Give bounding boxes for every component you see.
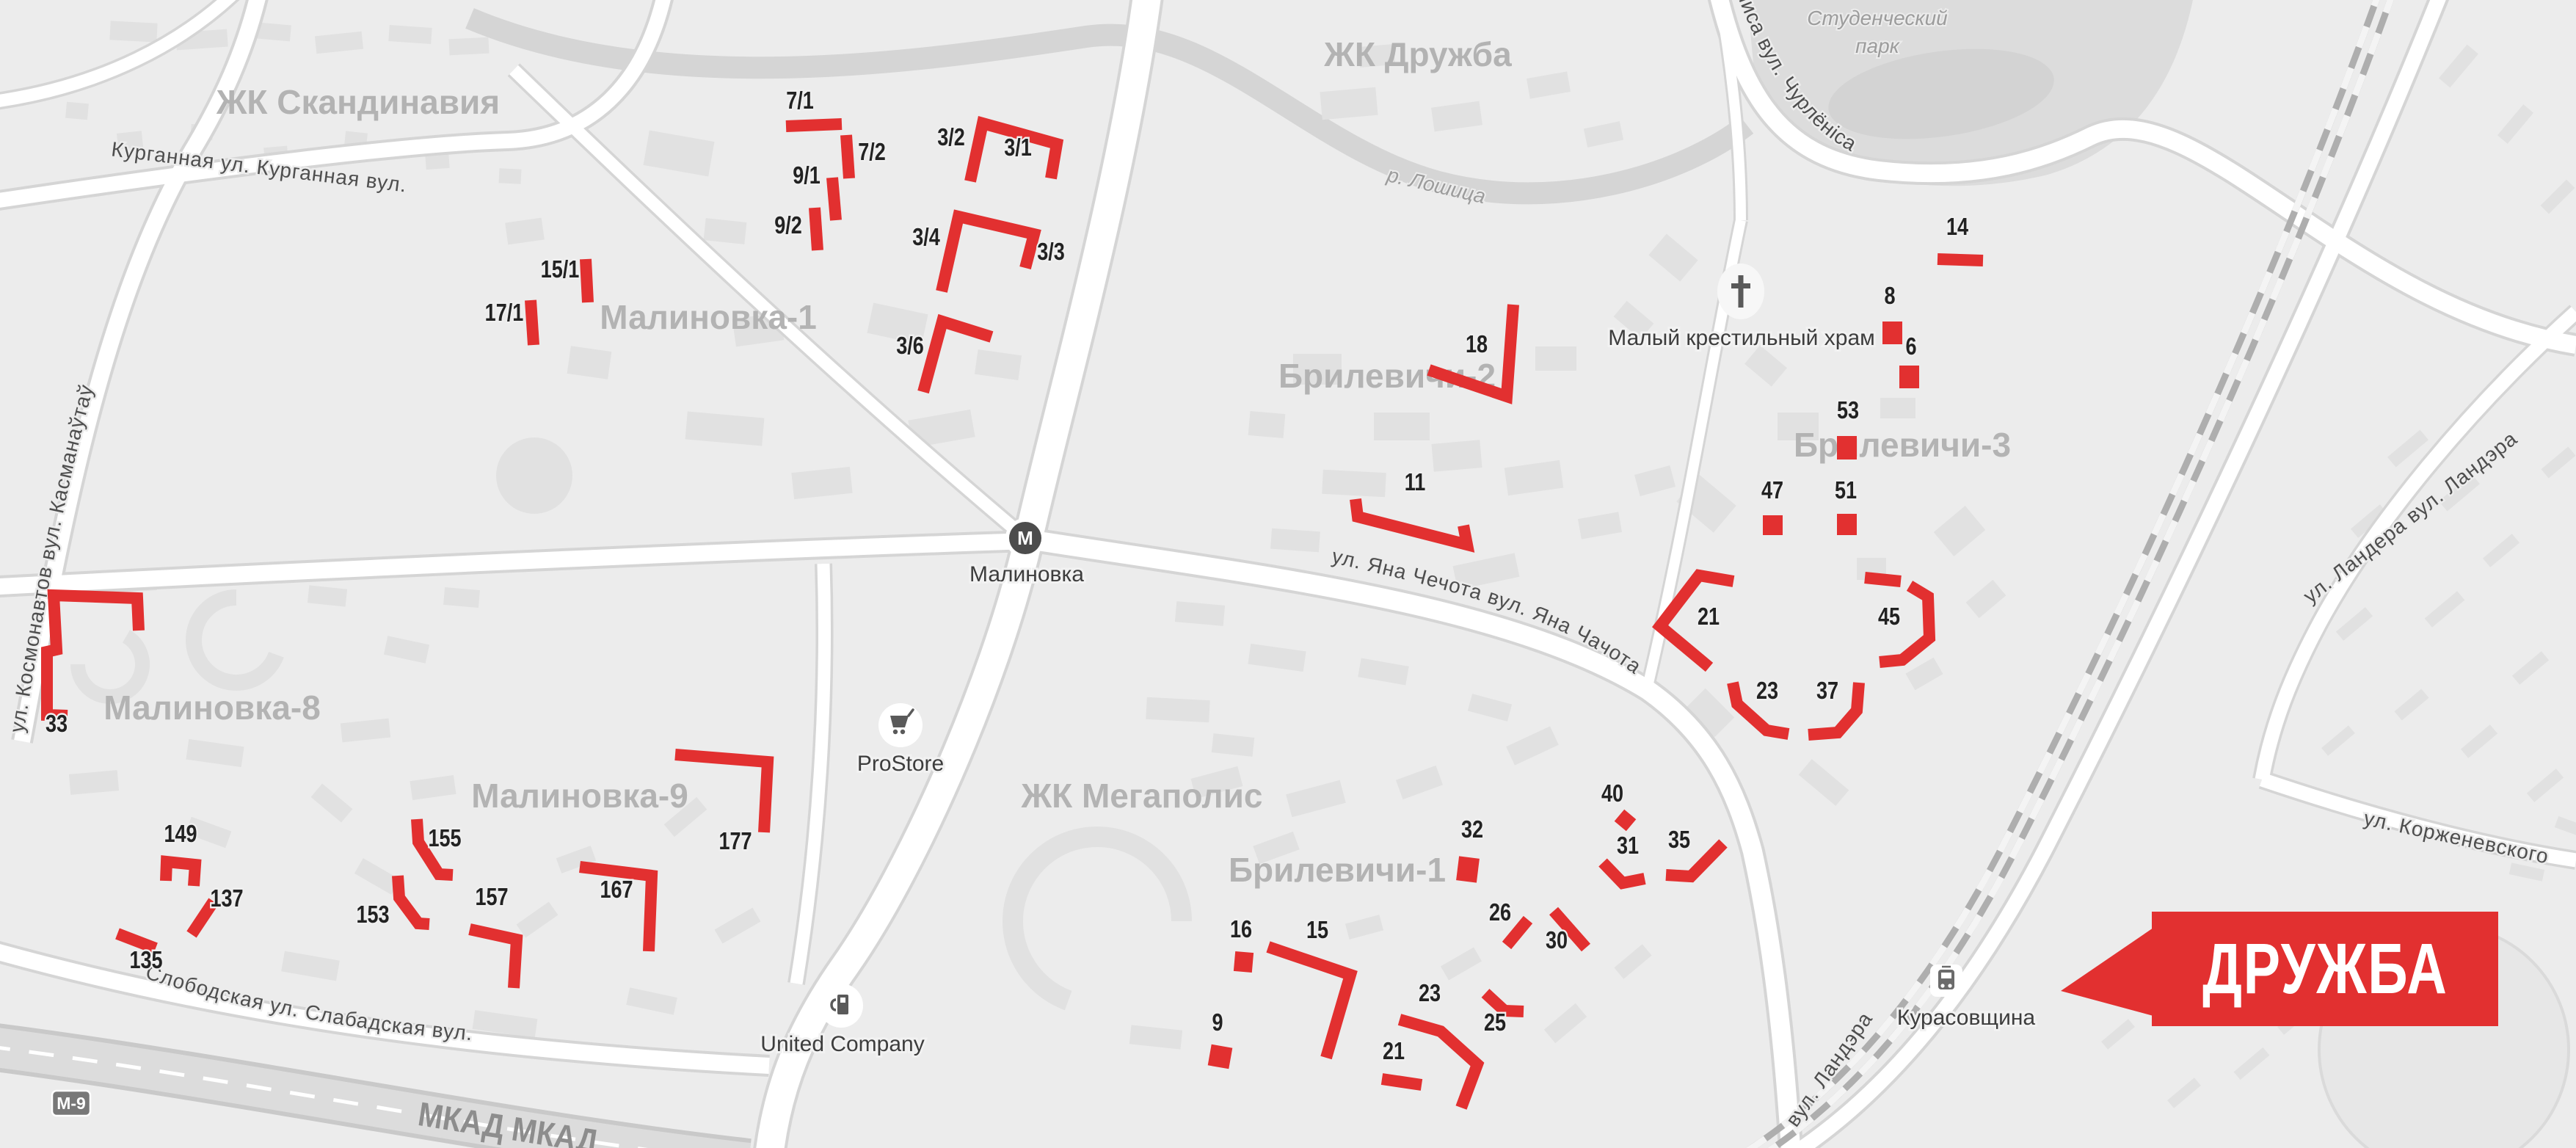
building-number: 53 bbox=[1837, 398, 1859, 424]
area-label: Малиновка-1 bbox=[600, 298, 817, 336]
building-marker: 167 bbox=[580, 867, 652, 951]
building-number: 32 bbox=[1461, 817, 1483, 843]
train-icon bbox=[1930, 964, 1962, 997]
building-marker: 17/1 bbox=[485, 300, 534, 345]
building-marker: 155 bbox=[417, 819, 462, 875]
building-marker: 47 bbox=[1761, 478, 1783, 535]
nature-label: р. Лошица bbox=[1384, 163, 1488, 208]
area-label: Брилевичи-1 bbox=[1229, 851, 1446, 889]
building-marker: 37 bbox=[1808, 678, 1859, 735]
building-marker: 40 bbox=[1601, 781, 1636, 832]
building-marker: 30 bbox=[1546, 911, 1586, 954]
building-number: 7/2 bbox=[858, 139, 886, 166]
building-number: 135 bbox=[129, 948, 162, 974]
building-marker: 6 bbox=[1899, 334, 1919, 388]
building-marker: 31 bbox=[1603, 833, 1645, 883]
building-marker: 3/4 bbox=[912, 217, 1034, 291]
fuel-icon bbox=[819, 984, 863, 1028]
building-number: 21 bbox=[1698, 604, 1720, 631]
nature-label: Студенческий bbox=[1807, 7, 1948, 29]
poi-label: ProStore bbox=[857, 752, 944, 776]
building-number: 149 bbox=[164, 821, 197, 848]
building-number: 21 bbox=[1383, 1039, 1405, 1065]
building-number: 3/4 bbox=[912, 225, 940, 251]
building-marker: 26 bbox=[1489, 900, 1528, 945]
building-number: 23 bbox=[1419, 981, 1441, 1007]
building-number: 9/1 bbox=[793, 163, 821, 189]
building-number: 3/3 bbox=[1037, 239, 1065, 266]
building-number: 25 bbox=[1484, 1010, 1506, 1036]
building-marker: 7/1 bbox=[786, 88, 842, 126]
building-marker: 15 bbox=[1268, 918, 1350, 1058]
building-number: 33 bbox=[46, 711, 68, 738]
building-marker: 15/1 bbox=[541, 257, 588, 302]
poi-label: United Company bbox=[760, 1032, 924, 1056]
building-marker: 135 bbox=[117, 934, 163, 974]
building-number: 137 bbox=[210, 886, 243, 912]
building-number: 6 bbox=[1905, 334, 1916, 360]
building-number: 18 bbox=[1466, 332, 1488, 358]
building-number: 167 bbox=[600, 877, 633, 904]
building-number: 3/1 bbox=[1004, 135, 1032, 161]
building-number: 7/1 bbox=[786, 88, 814, 115]
building-number: 15/1 bbox=[541, 257, 580, 283]
building-number: 153 bbox=[356, 902, 389, 929]
poi-label: Малый крестильный храм bbox=[1608, 326, 1875, 350]
building-marker: 3/1 bbox=[1004, 135, 1032, 161]
building-number: 9 bbox=[1212, 1010, 1223, 1036]
building-marker: 35 bbox=[1666, 827, 1723, 876]
nature-label: парк bbox=[1855, 34, 1901, 57]
building-marker: 3/2 bbox=[937, 123, 1057, 181]
building-marker: 157 bbox=[470, 884, 517, 988]
building-marker: 32 bbox=[1456, 817, 1483, 883]
building-number: 35 bbox=[1668, 827, 1690, 854]
building-number: 157 bbox=[475, 884, 508, 911]
building-marker: 9/2 bbox=[774, 208, 818, 250]
building-number: 30 bbox=[1546, 928, 1568, 954]
building-number: 3/2 bbox=[937, 125, 965, 151]
building-marker: 153 bbox=[356, 876, 429, 929]
building-number: 16 bbox=[1230, 917, 1252, 943]
building-marker: 45 bbox=[1865, 578, 1929, 662]
building-number: 177 bbox=[718, 829, 752, 855]
building-number: 51 bbox=[1835, 478, 1857, 504]
building-marker: 25 bbox=[1484, 993, 1524, 1036]
area-label: Брилевичи-3 bbox=[1794, 426, 2011, 464]
building-marker: 21 bbox=[1382, 1039, 1422, 1085]
building-marker: 149 bbox=[164, 821, 197, 886]
building-number: 9/2 bbox=[774, 213, 802, 239]
building-number: 47 bbox=[1761, 478, 1783, 504]
building-number: 31 bbox=[1617, 833, 1639, 860]
banner-arrow-icon bbox=[2059, 922, 2153, 1019]
building-marker: 7/2 bbox=[846, 135, 886, 178]
road-badge-label: М-9 bbox=[57, 1094, 86, 1113]
building-number: 40 bbox=[1601, 781, 1623, 807]
building-marker: 137 bbox=[192, 886, 244, 934]
road-badge-m9: М-9 bbox=[52, 1091, 90, 1116]
building-marker: 51 bbox=[1835, 478, 1857, 535]
building-marker: 9 bbox=[1208, 1010, 1233, 1069]
building-number: 15 bbox=[1306, 918, 1328, 944]
building-marker: 8 bbox=[1882, 283, 1902, 344]
building-number: 11 bbox=[1405, 470, 1426, 496]
building-number: 17/1 bbox=[485, 300, 524, 327]
svg-text:М: М bbox=[1017, 527, 1033, 549]
building-marker: 16 bbox=[1230, 917, 1254, 973]
building-number: 3/6 bbox=[896, 333, 924, 360]
building-number: 23 bbox=[1756, 678, 1778, 705]
building-number: 8 bbox=[1884, 283, 1895, 310]
cross-icon bbox=[1717, 264, 1764, 319]
area-label: Малиновка-8 bbox=[103, 689, 321, 727]
cart-icon bbox=[878, 703, 923, 747]
building-number: 45 bbox=[1878, 604, 1900, 631]
building-number: 26 bbox=[1489, 900, 1511, 926]
building-marker: 3/3 bbox=[1037, 239, 1065, 266]
street-label: ул. Корженевского bbox=[2362, 807, 2551, 868]
area-label: ЖК Дружба bbox=[1323, 35, 1512, 73]
building-marker: 23 bbox=[1733, 678, 1789, 734]
drujba-banner: ДРУЖБА bbox=[2152, 912, 2498, 1026]
banner-label: ДРУЖБА bbox=[2202, 928, 2448, 1010]
map-canvas[interactable]: ЖК СкандинавияЖК ДружбаМалиновка-1Малино… bbox=[0, 0, 2576, 1148]
area-label: Малиновка-9 bbox=[471, 777, 688, 815]
poi-label: Малиновка bbox=[969, 562, 1084, 586]
area-label: ЖК Мегаполис bbox=[1021, 777, 1263, 815]
area-label: ЖК Скандинавия bbox=[216, 83, 500, 121]
building-number: 37 bbox=[1816, 678, 1838, 705]
poi-label: Курасовщина bbox=[1897, 1006, 2035, 1030]
building-number: 155 bbox=[428, 826, 461, 852]
metro-icon: М bbox=[1005, 518, 1045, 558]
building-marker: 14 bbox=[1938, 214, 1983, 261]
building-number: 14 bbox=[1946, 214, 1968, 241]
